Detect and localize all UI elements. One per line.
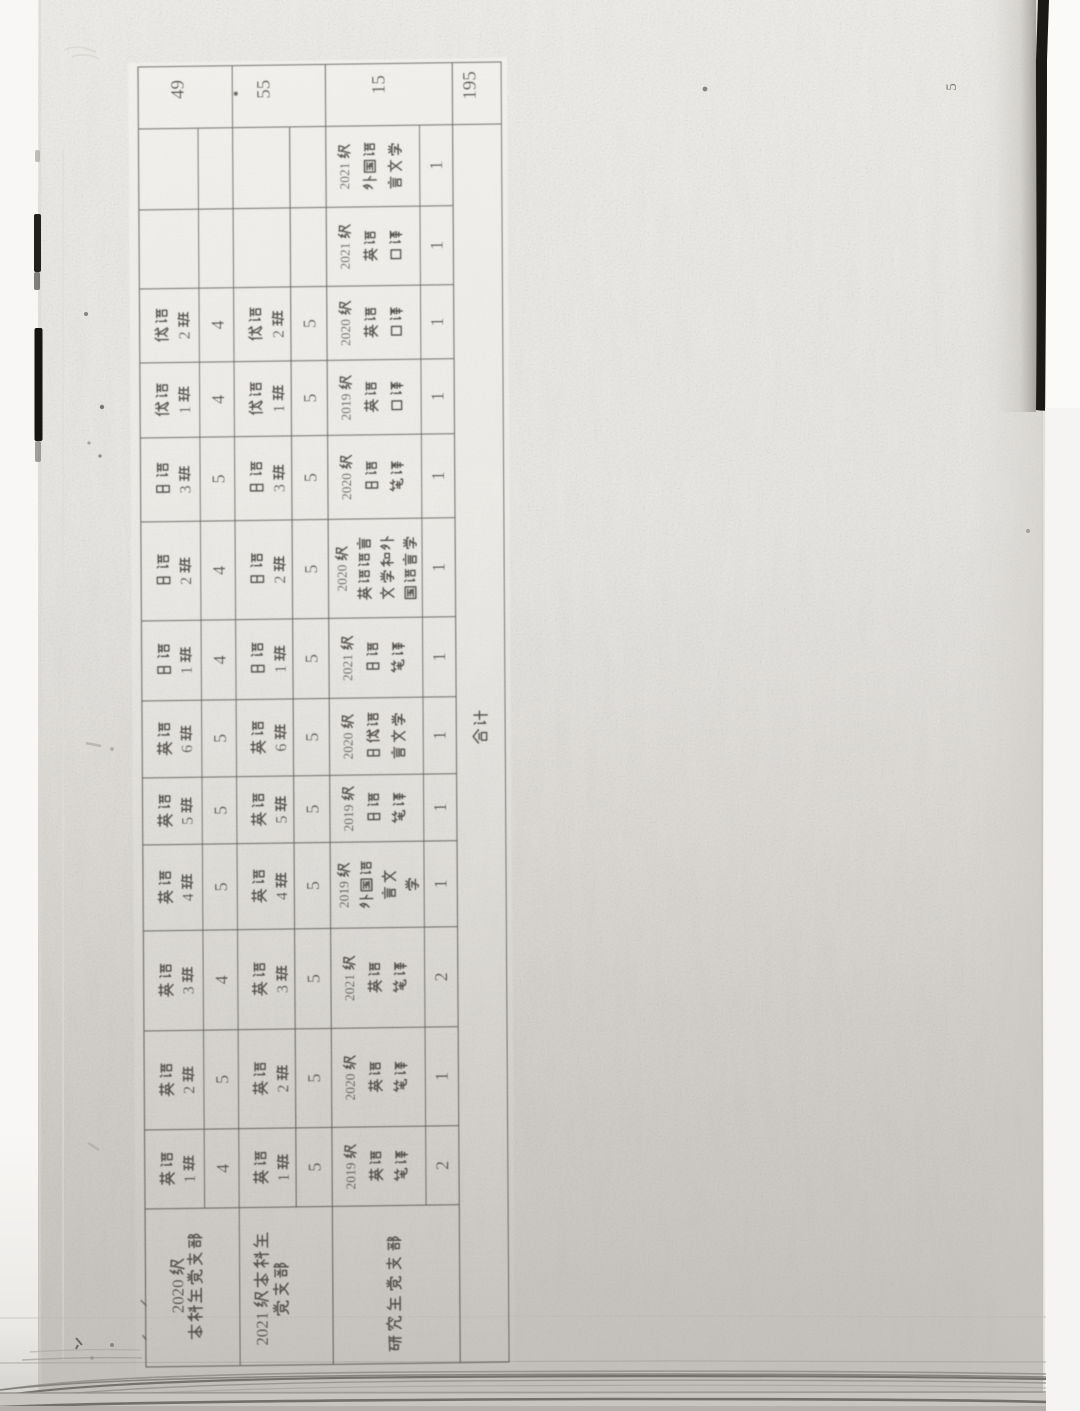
svg-text:1: 1 xyxy=(430,803,450,812)
svg-text:5: 5 xyxy=(211,806,231,815)
svg-text:2021: 2021 xyxy=(342,974,357,1001)
svg-text:2: 2 xyxy=(177,331,194,339)
svg-text:2021: 2021 xyxy=(337,162,352,189)
svg-text:4: 4 xyxy=(212,975,232,984)
svg-text:49: 49 xyxy=(168,80,189,99)
svg-text:1: 1 xyxy=(431,879,451,888)
svg-text:5: 5 xyxy=(301,473,321,482)
svg-text:5: 5 xyxy=(213,1075,233,1084)
svg-text:2021: 2021 xyxy=(340,654,355,681)
svg-text:6: 6 xyxy=(273,743,290,751)
svg-text:5: 5 xyxy=(304,1073,324,1082)
svg-text:1: 1 xyxy=(182,1175,199,1183)
svg-text:5: 5 xyxy=(211,882,231,891)
svg-text:5: 5 xyxy=(209,474,229,483)
svg-text:5: 5 xyxy=(303,804,323,813)
svg-text:5: 5 xyxy=(304,974,324,983)
svg-text:4: 4 xyxy=(209,566,229,575)
svg-text:5: 5 xyxy=(300,393,320,402)
svg-text:5: 5 xyxy=(303,881,323,890)
svg-text:6: 6 xyxy=(179,745,196,753)
svg-text:5: 5 xyxy=(302,654,322,663)
svg-text:2020: 2020 xyxy=(343,1073,358,1101)
svg-text:4: 4 xyxy=(274,892,291,900)
svg-text:2020: 2020 xyxy=(169,1279,188,1313)
svg-text:1: 1 xyxy=(276,1173,293,1181)
svg-text:2: 2 xyxy=(431,972,451,981)
svg-text:4: 4 xyxy=(208,395,228,404)
svg-text:1: 1 xyxy=(430,731,450,740)
svg-text:2020: 2020 xyxy=(341,732,356,760)
svg-text:2: 2 xyxy=(271,330,288,338)
svg-text:2021: 2021 xyxy=(253,1312,272,1346)
svg-text:15: 15 xyxy=(369,75,390,94)
svg-text:1: 1 xyxy=(428,471,448,480)
svg-text:2: 2 xyxy=(181,1086,198,1094)
svg-text:4: 4 xyxy=(210,655,230,664)
svg-text:2: 2 xyxy=(275,1084,292,1092)
svg-text:195: 195 xyxy=(459,71,480,100)
svg-text:1: 1 xyxy=(426,161,446,170)
svg-text:2019: 2019 xyxy=(341,804,356,832)
svg-text:1: 1 xyxy=(179,666,196,674)
svg-text:5: 5 xyxy=(274,815,291,823)
svg-text:2019: 2019 xyxy=(337,881,352,909)
svg-text:4: 4 xyxy=(213,1164,233,1173)
svg-text:1: 1 xyxy=(427,317,447,326)
svg-text:2019: 2019 xyxy=(339,393,354,421)
svg-text:1: 1 xyxy=(427,241,447,250)
svg-text:1: 1 xyxy=(432,1072,452,1081)
svg-text:4: 4 xyxy=(180,893,197,901)
svg-text:5: 5 xyxy=(180,817,197,825)
svg-text:5: 5 xyxy=(302,732,322,741)
svg-text:3: 3 xyxy=(275,985,292,993)
svg-text:2: 2 xyxy=(178,577,195,585)
svg-text:1: 1 xyxy=(273,665,290,673)
svg-text:2020: 2020 xyxy=(339,473,354,501)
svg-text:3: 3 xyxy=(181,986,198,994)
svg-text:2: 2 xyxy=(272,575,289,583)
svg-text:1: 1 xyxy=(429,652,449,661)
svg-text:5: 5 xyxy=(301,564,321,573)
svg-text:1: 1 xyxy=(429,563,449,572)
svg-text:3: 3 xyxy=(272,484,289,492)
svg-text:55: 55 xyxy=(254,80,275,99)
svg-text:5: 5 xyxy=(300,319,320,328)
svg-text:2020: 2020 xyxy=(335,564,350,592)
svg-text:1: 1 xyxy=(271,404,288,412)
svg-text:5: 5 xyxy=(210,734,230,743)
svg-text:1: 1 xyxy=(428,392,448,401)
svg-text:2: 2 xyxy=(433,1161,453,1170)
svg-text:2019: 2019 xyxy=(343,1162,358,1190)
svg-text:3: 3 xyxy=(178,485,195,493)
svg-text:4: 4 xyxy=(208,320,228,329)
svg-text:1: 1 xyxy=(177,406,194,414)
svg-text:2020: 2020 xyxy=(338,319,353,347)
svg-text:5: 5 xyxy=(305,1162,325,1171)
svg-text:5: 5 xyxy=(944,83,960,91)
svg-text:2021: 2021 xyxy=(338,242,353,269)
